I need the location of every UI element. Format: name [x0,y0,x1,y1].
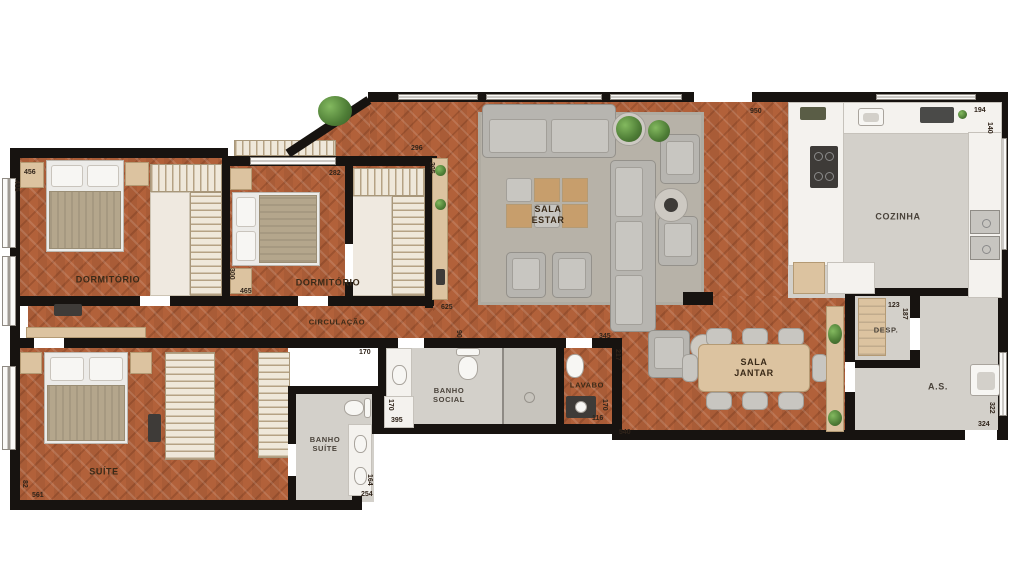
dining-chair [706,392,732,410]
double-bed-suite [44,352,128,444]
window-dorm2 [250,157,336,165]
door-dorm1 [140,296,170,306]
wardrobe-suite [165,352,215,460]
dim-324: 324 [978,421,990,428]
nightstand [125,162,149,186]
wall-banho-suite-right [372,386,380,428]
kitchen-sink [858,108,884,126]
dim-82: 82 [21,480,28,488]
room-label-cozinha: COZINHA [875,212,920,223]
dim-561: 561 [32,492,44,499]
room-label-sala-estar: SALAESTAR [532,204,565,226]
dim-625: 625 [441,304,453,311]
dim-322: 322 [988,402,995,414]
door-banho-suite [288,444,296,476]
dim-296: 296 [411,145,423,152]
dim-170-lavabo: 170 [601,399,608,411]
room-label-banho-social: BANHOSOCIAL [433,386,465,404]
room-label-banho-suite: BANHOSUÍTE [310,435,341,453]
plant-small [958,110,967,119]
armchair [552,252,592,298]
wall-suite-bottom [10,500,362,510]
dim-540: 540 [619,429,631,436]
door-banho-social [398,338,424,348]
wall-corridor-bottom [10,338,622,348]
window-planter-dorm2 [234,140,336,156]
room-label-suite: SUÍTE [89,467,119,478]
toilet-banho-suite [344,400,364,416]
room-label-dormitorio-2: DORMITÓRIO [296,278,361,289]
dim-194: 194 [974,107,986,114]
nightstand [130,352,152,374]
sofa-right [610,160,656,332]
wall-dorm1-top [10,148,228,158]
oven [970,210,1000,234]
wardrobe-dorm1-side [190,192,222,296]
dim-170-door: 170 [359,349,371,356]
dish-rack [920,107,954,123]
window-suite [2,366,16,450]
dim-282: 282 [329,170,341,177]
toilet-banho-social [458,356,478,380]
closet-dorm1-floor [150,192,190,296]
door-suite [34,338,64,348]
dim-465: 465 [240,288,252,295]
cooktop-island [810,146,838,188]
dim-170-banho: 170 [387,399,394,411]
dim-395: 395 [391,417,403,424]
armchair [506,252,546,298]
vanity-banho-social [386,348,412,398]
dim-300: 300 [228,268,235,280]
floor-area-servico-2 [855,366,917,432]
dining-chair [742,392,768,410]
kitchen-cabinet [827,262,875,294]
dim-90: 90 [455,330,462,338]
room-label-area-servico: A.S. [928,382,948,393]
double-bed-dorm1 [46,160,124,252]
floor-shower [504,348,556,424]
armchair [660,134,700,184]
toilet-lavabo [566,354,584,378]
wardrobe-dorm1-top [150,164,222,192]
toilet-tank [364,398,371,418]
terrace-plant [318,96,352,126]
wall-dorm2-closet [345,166,353,244]
nightstand [230,168,252,190]
kitchen-appliance [800,107,826,120]
wall-dining-bottom [612,430,1008,440]
glass-door-living-c [610,94,682,100]
column [683,292,713,305]
wardrobe-dorm2-top [352,168,425,196]
plant [648,120,670,142]
window-kitchen [876,94,976,100]
nightstand [20,352,42,374]
wall-shower-lavabo [556,346,564,426]
door-closet-dorm2 [345,244,353,282]
dim-254: 254 [361,491,373,498]
sideboard-living [432,158,448,300]
door-area-servico [845,362,855,392]
dining-chair [682,354,698,382]
plant [828,324,842,344]
dim-950: 950 [750,108,762,115]
window-dorm1-b [2,256,16,326]
dim-217: 217 [614,349,621,361]
wall-banho-suite-top [288,386,380,394]
oven [970,236,1000,260]
door-dorm2 [298,296,328,306]
side-table [654,188,688,222]
dim-345: 345 [599,333,611,340]
door-entrance [694,92,752,102]
plant [828,410,842,426]
room-label-sala-jantar: SALAJANTAR [734,357,773,379]
dim-456: 456 [24,169,36,176]
corridor-sideboard [26,327,146,338]
wall-despensa-bottom [855,360,917,368]
room-label-dormitorio-1: DORMITÓRIO [76,275,141,286]
wardrobe-dorm2-side [392,196,425,296]
dim-116: 116 [592,415,603,422]
room-label-circulacao: CIRCULAÇÃO [309,318,365,327]
dim-164: 164 [366,474,373,486]
desk-dorm1 [54,304,82,316]
floor-plan: DORMITÓRIO DORMITÓRIO CIRCULAÇÃO SALAEST… [0,0,1024,576]
shower-glass [502,348,504,424]
laundry-sink [970,364,1000,396]
dim-123: 123 [888,302,900,309]
room-label-lavabo: LAVABO [570,381,604,390]
fridge [793,262,825,294]
toilet-tank [456,348,480,356]
wall-dorm1-dorm2 [222,156,230,306]
dining-chair [778,392,804,410]
dim-187: 187 [901,308,908,320]
shower-drain [524,392,535,403]
door-despensa [910,318,920,350]
closet-suite [258,352,290,458]
dim-205: 205 [428,162,435,174]
glass-door-living-b [486,94,602,100]
window-area-servico [999,352,1007,416]
plant [616,116,642,142]
armchair [658,216,698,266]
door-service-exit [965,430,997,440]
sofa-top [482,104,616,158]
glass-door-living-a [398,94,478,100]
tv-rack-suite [148,414,161,442]
dim-140: 140 [986,122,993,134]
dim-415: 415 [13,180,20,192]
double-bed-dorm2 [232,192,320,266]
room-label-despensa: DESP. [874,326,899,335]
door-lavabo [566,338,592,348]
